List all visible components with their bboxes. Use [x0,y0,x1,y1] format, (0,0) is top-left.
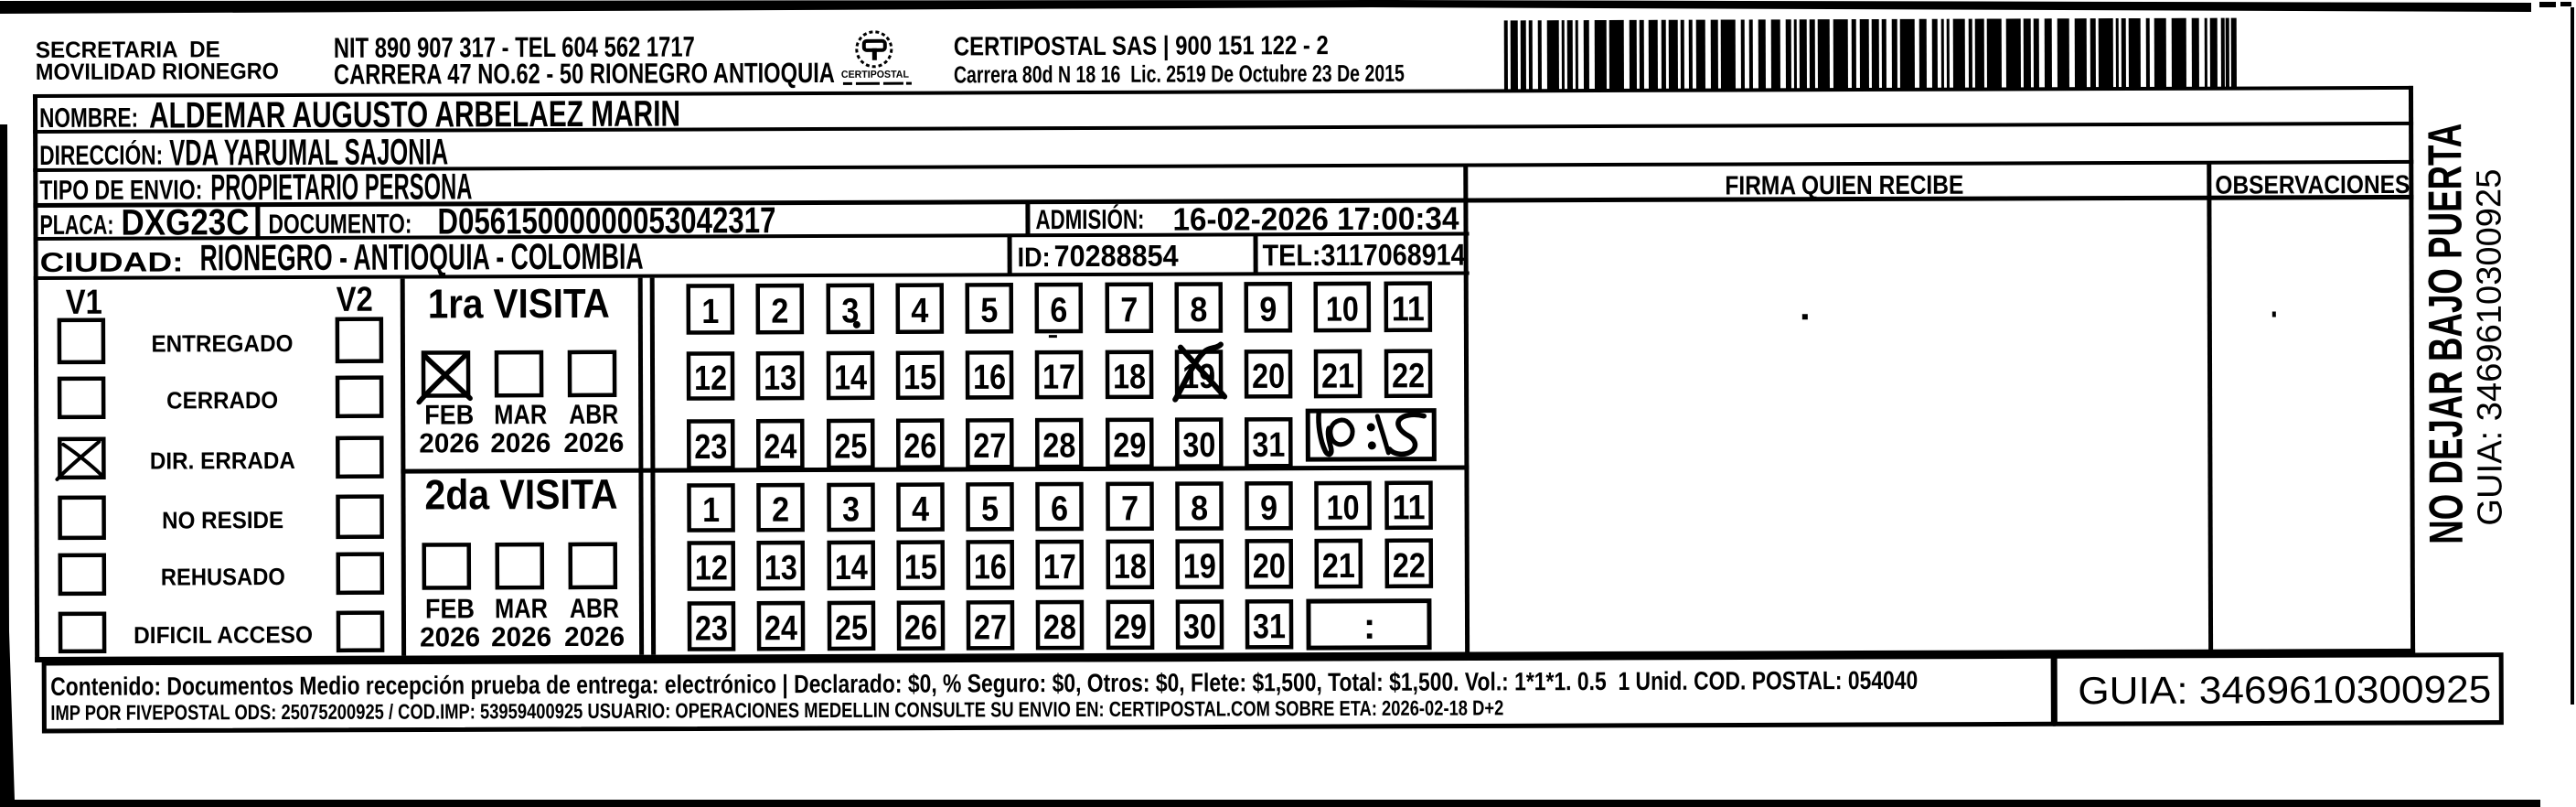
svg-text:21: 21 [1321,357,1354,395]
svg-text:7: 7 [1120,291,1138,329]
svg-text:20: 20 [1252,358,1285,396]
svg-text:15: 15 [904,549,937,587]
svg-text:PROPIETARIO PERSONA: PROPIETARIO PERSONA [210,167,472,208]
svg-text:FEB: FEB [425,594,475,624]
svg-text:REHUSADO: REHUSADO [161,563,285,590]
svg-text:2: 2 [771,293,788,331]
svg-text:25: 25 [834,427,867,466]
svg-text:11: 11 [1392,290,1425,328]
svg-text:31: 31 [1253,608,1286,646]
svg-text:Carrera 80d N 18 16 Lic. 2519: Carrera 80d N 18 16 Lic. 2519 De Octubre… [954,59,1405,89]
svg-text:2026: 2026 [563,428,624,458]
svg-text:16: 16 [974,548,1007,586]
svg-text:OBSERVACIONES: OBSERVACIONES [2215,170,2410,199]
svg-text:70288854: 70288854 [1054,239,1180,273]
svg-text:16-02-2026 17:00:34: 16-02-2026 17:00:34 [1172,201,1459,238]
svg-text:12: 12 [694,360,727,398]
svg-text:1: 1 [701,293,719,331]
svg-text:14: 14 [834,359,867,397]
svg-text:FEB: FEB [424,400,474,430]
svg-text:DIR. ERRADA: DIR. ERRADA [150,447,295,475]
svg-text:ID:: ID: [1018,242,1051,273]
svg-text:ABR: ABR [570,594,619,624]
svg-text:RIONEGRO - ANTIOQUIA - COLOMBI: RIONEGRO - ANTIOQUIA - COLOMBIA [200,237,644,279]
svg-text:5: 5 [981,490,999,529]
svg-text:6: 6 [1051,490,1068,529]
svg-text:2da VISITA: 2da VISITA [424,470,617,519]
svg-text:TIPO DE ENVIO:: TIPO DE ENVIO: [39,175,202,206]
svg-text:26: 26 [903,427,936,466]
svg-text:13: 13 [764,360,796,398]
svg-text:D05615000000053042317: D05615000000053042317 [437,200,775,242]
svg-text:28: 28 [1042,427,1075,466]
svg-text:2026: 2026 [491,622,551,652]
svg-text:23: 23 [695,609,728,648]
svg-text:23: 23 [694,428,727,467]
svg-text:10: 10 [1326,290,1359,328]
svg-text:24: 24 [764,428,796,467]
svg-text:15: 15 [903,359,936,397]
svg-text:19: 19 [1183,547,1216,586]
svg-text:29: 29 [1113,426,1146,465]
svg-text:MOVILIDAD RIONEGRO: MOVILIDAD RIONEGRO [36,59,279,85]
svg-text:27: 27 [974,608,1007,647]
svg-text:2026: 2026 [419,428,479,458]
svg-text:25: 25 [835,609,868,648]
svg-text:27: 27 [973,427,1006,466]
svg-text:V1: V1 [66,284,102,322]
svg-text:CERTIPOSTAL: CERTIPOSTAL [841,70,909,81]
svg-text:DXG23C: DXG23C [121,202,249,242]
svg-text:CERRADO: CERRADO [166,386,278,414]
svg-text:IMP POR FIVEPOSTAL ODS: 250752: IMP POR FIVEPOSTAL ODS: 25075200925 / CO… [50,695,1503,725]
svg-text:1: 1 [702,491,720,530]
svg-text:DIFICIL ACCESO: DIFICIL ACCESO [134,620,313,649]
svg-text:28: 28 [1043,608,1076,647]
svg-text:30: 30 [1183,608,1216,646]
svg-text:TEL:3117068914: TEL:3117068914 [1263,238,1467,273]
svg-text:DOCUMENTO:: DOCUMENTO: [268,210,412,241]
svg-text:NO RESIDE: NO RESIDE [162,506,283,533]
svg-text:MAR: MAR [495,594,548,624]
svg-text:2026: 2026 [564,622,625,652]
svg-text:18: 18 [1113,358,1146,396]
svg-text:31: 31 [1252,426,1285,465]
svg-text:8: 8 [1191,490,1208,528]
svg-text:1ra VISITA: 1ra VISITA [428,280,610,328]
svg-text:FIRMA QUIEN RECIBE: FIRMA QUIEN RECIBE [1725,171,1963,201]
svg-text:30: 30 [1182,426,1215,465]
svg-text:9: 9 [1259,291,1277,329]
svg-text:2026: 2026 [420,622,480,652]
svg-text:3: 3 [842,490,860,529]
svg-text:V2: V2 [337,281,373,319]
svg-text:26: 26 [904,609,937,648]
svg-text:8: 8 [1190,291,1207,329]
svg-text:5: 5 [980,292,998,330]
svg-text:11: 11 [1392,489,1425,527]
svg-text:NO DEJAR BAJO PUERTA: NO DEJAR BAJO PUERTA [2419,124,2474,544]
svg-text:17: 17 [1042,359,1075,397]
svg-text:22: 22 [1393,547,1426,586]
svg-text:18: 18 [1114,548,1147,586]
svg-text:22: 22 [1392,357,1425,395]
svg-text:CARRERA 47 NO.62 - 50 RIONEGRO: CARRERA 47 NO.62 - 50 RIONEGRO ANTIOQUIA [334,57,835,91]
svg-text:CIUDAD:: CIUDAD: [40,247,184,278]
svg-text:DIRECCIÓN:: DIRECCIÓN: [39,140,163,171]
svg-text:6: 6 [1050,292,1067,330]
svg-text:4: 4 [911,292,928,330]
svg-text:4: 4 [912,490,929,529]
svg-text:NOMBRE:: NOMBRE: [39,103,138,134]
svg-text::: : [1363,607,1375,647]
svg-text:ALDEMAR AUGUSTO ARBELAEZ MARIN: ALDEMAR AUGUSTO ARBELAEZ MARIN [149,94,680,136]
svg-text:20: 20 [1253,547,1286,586]
svg-text:9: 9 [1260,490,1277,528]
svg-text:2026: 2026 [490,428,550,458]
svg-text:ADMISIÓN:: ADMISIÓN: [1035,204,1144,235]
svg-text:21: 21 [1322,547,1355,586]
svg-text:13: 13 [764,549,797,587]
svg-text:CERTIPOSTAL SAS | 900 151 122: CERTIPOSTAL SAS | 900 151 122 - 2 [954,31,1329,61]
svg-text:7: 7 [1121,490,1138,528]
svg-text:10: 10 [1326,489,1359,527]
svg-text:GUIA: 3469610300925: GUIA: 3469610300925 [2078,668,2491,713]
svg-text:12: 12 [695,549,728,587]
svg-text:17: 17 [1043,548,1076,586]
svg-text:MAR: MAR [494,400,547,430]
svg-text:24: 24 [764,609,797,648]
svg-text:29: 29 [1114,608,1147,647]
svg-text:ENTREGADO: ENTREGADO [151,329,293,358]
svg-text:14: 14 [835,549,868,587]
svg-text:GUIA: 3469610300925: GUIA: 3469610300925 [2470,169,2509,526]
svg-text:16: 16 [973,359,1006,397]
svg-text:2: 2 [772,491,789,530]
svg-text:PLACA:: PLACA: [39,210,113,241]
svg-text:ABR: ABR [569,400,618,430]
